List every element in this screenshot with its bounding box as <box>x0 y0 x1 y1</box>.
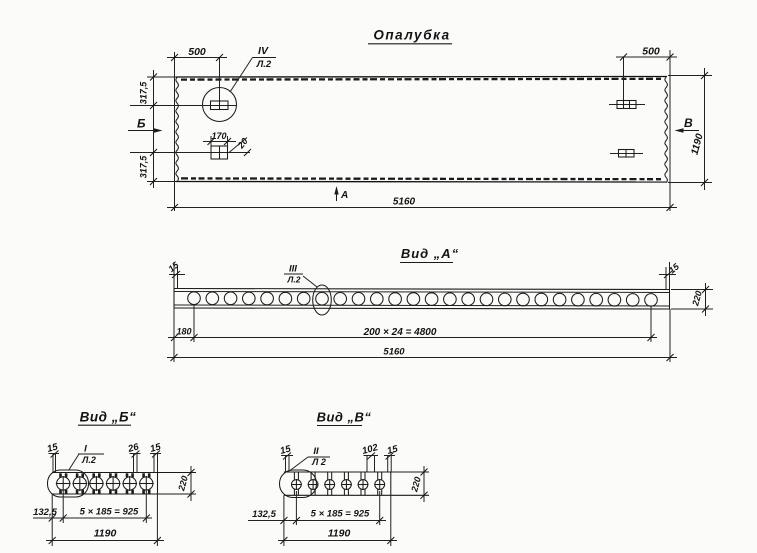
svg-text:Л 2: Л 2 <box>311 457 326 467</box>
svg-text:132,5: 132,5 <box>252 509 276 520</box>
svg-text:1190: 1190 <box>94 528 117 540</box>
svg-text:Л.2: Л.2 <box>287 275 301 285</box>
svg-text:1190: 1190 <box>328 528 351 540</box>
svg-text:Вид „Б“: Вид „Б“ <box>80 410 137 425</box>
svg-text:Л.2: Л.2 <box>256 59 272 70</box>
svg-text:5 × 185 = 925: 5 × 185 = 925 <box>311 509 370 520</box>
svg-text:317,5: 317,5 <box>139 81 149 105</box>
svg-text:Опалубка: Опалубка <box>373 28 450 43</box>
svg-text:Вид „В“: Вид „В“ <box>317 410 372 425</box>
svg-text:Л.2: Л.2 <box>81 455 96 465</box>
svg-text:317,5: 317,5 <box>139 155 149 179</box>
svg-text:В: В <box>684 116 693 130</box>
svg-text:180: 180 <box>176 327 191 337</box>
svg-text:Вид „А“: Вид „А“ <box>401 246 459 261</box>
svg-text:200 × 24 = 4800: 200 × 24 = 4800 <box>363 327 437 338</box>
svg-text:А: А <box>340 190 348 201</box>
svg-text:170: 170 <box>211 131 226 141</box>
svg-text:Б: Б <box>137 117 146 131</box>
svg-text:132,5: 132,5 <box>33 507 57 518</box>
svg-text:5 × 185 = 925: 5 × 185 = 925 <box>80 507 139 518</box>
svg-text:III: III <box>289 264 297 275</box>
svg-text:I: I <box>84 444 87 455</box>
svg-text:5160: 5160 <box>393 197 416 208</box>
svg-text:5160: 5160 <box>383 347 405 358</box>
svg-text:500: 500 <box>642 46 660 58</box>
svg-text:IV: IV <box>258 45 269 57</box>
svg-text:500: 500 <box>188 46 206 58</box>
svg-text:II: II <box>313 446 319 457</box>
